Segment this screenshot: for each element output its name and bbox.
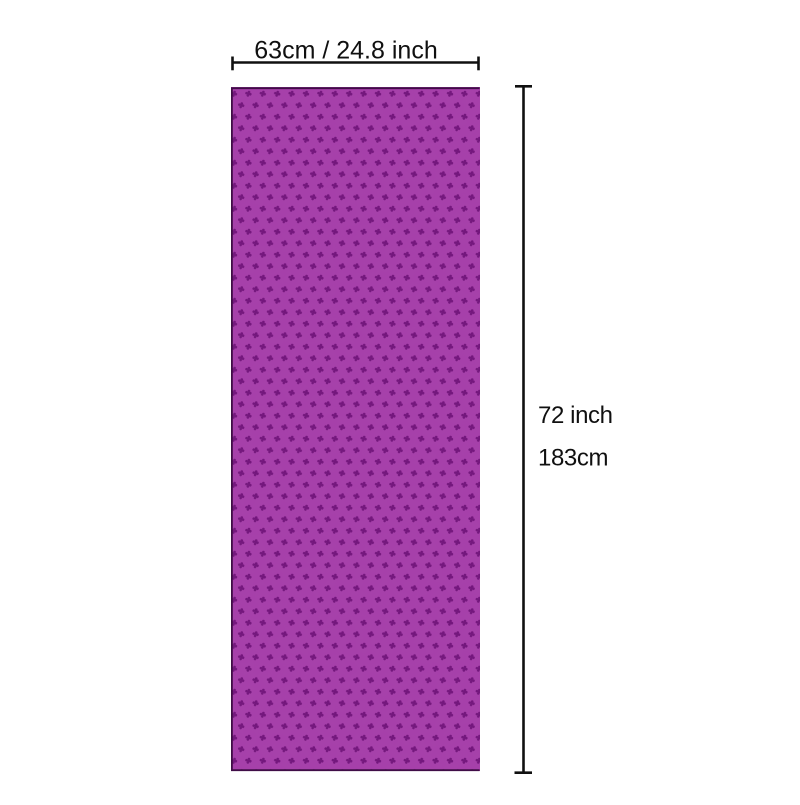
svg-text:183cm: 183cm [538, 444, 608, 471]
svg-text:63cm / 24.8 inch: 63cm / 24.8 inch [254, 37, 437, 65]
svg-text:72 inch: 72 inch [538, 402, 613, 429]
